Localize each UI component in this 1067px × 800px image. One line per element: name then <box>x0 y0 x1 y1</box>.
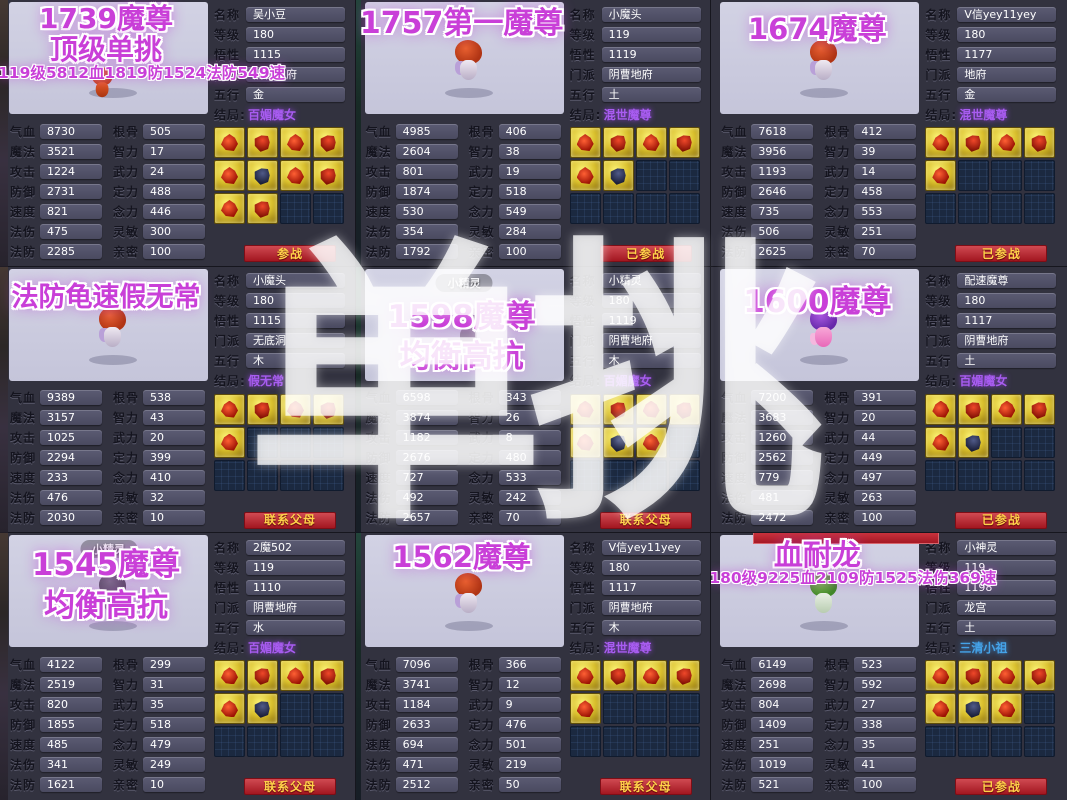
stat-label: 法伤 <box>10 223 40 240</box>
empty-skill-slot[interactable] <box>247 427 278 458</box>
info-label: 五行 <box>214 86 246 103</box>
empty-skill-slot[interactable] <box>1024 726 1055 757</box>
stat-row: 气血8730根骨505 <box>10 121 210 141</box>
info-value: V信yey11yey <box>602 540 701 555</box>
skill-icon[interactable] <box>669 660 700 691</box>
stat-label: 武力 <box>469 429 499 446</box>
stat-value: 694 <box>396 737 458 752</box>
empty-skill-slot[interactable] <box>925 460 956 491</box>
card-subtitle: 119级5812血1819防1524法防549速 <box>0 61 254 83</box>
stat-row: 气血4985根骨406 <box>366 121 566 141</box>
stat-value: 779 <box>751 470 813 485</box>
skill-icon[interactable] <box>570 427 601 458</box>
empty-skill-slot[interactable] <box>958 160 989 191</box>
empty-skill-slot[interactable] <box>958 460 989 491</box>
info-value: 小神灵 <box>957 540 1056 555</box>
empty-skill-slot[interactable] <box>636 160 667 191</box>
skill-icon[interactable] <box>570 127 601 158</box>
stat-label: 攻击 <box>721 429 751 446</box>
stat-row: 攻击804武力27 <box>721 694 921 714</box>
stat-value: 38 <box>499 144 561 159</box>
pet-sprite <box>449 573 489 623</box>
stat-value: 480 <box>499 450 561 465</box>
skill-glyph <box>962 131 986 155</box>
stat-label: 灵敏 <box>113 756 143 773</box>
skill-icon[interactable] <box>603 660 634 691</box>
info-value: 木 <box>246 353 345 368</box>
skill-icon[interactable] <box>603 394 634 425</box>
ending-value: 三清小祖 <box>957 639 1007 656</box>
info-row: 等级180 <box>214 291 352 311</box>
skill-icon[interactable] <box>1024 660 1055 691</box>
stat-label: 亲密 <box>469 509 499 526</box>
skill-icon[interactable] <box>570 660 601 691</box>
skill-icon[interactable] <box>214 427 245 458</box>
info-label: 悟性 <box>214 579 246 596</box>
stat-label: 魔法 <box>721 143 751 160</box>
empty-skill-slot[interactable] <box>925 193 956 224</box>
stat-value: 2625 <box>751 244 813 259</box>
stat-value: 100 <box>143 244 205 259</box>
stat-label: 智力 <box>469 409 499 426</box>
info-value: 1117 <box>602 580 701 595</box>
skill-icon[interactable] <box>214 660 245 691</box>
skill-icon[interactable] <box>603 160 634 191</box>
skill-icon[interactable] <box>247 127 278 158</box>
info-label: 名称 <box>925 272 957 289</box>
empty-skill-slot[interactable] <box>603 193 634 224</box>
skill-grid <box>570 394 703 491</box>
stat-value: 354 <box>396 224 458 239</box>
info-value: 1119 <box>602 47 701 62</box>
stat-value: 219 <box>499 757 561 772</box>
skill-icon[interactable] <box>280 660 311 691</box>
skill-icon[interactable] <box>570 394 601 425</box>
stat-label: 武力 <box>113 696 143 713</box>
skill-glyph <box>643 134 660 151</box>
empty-skill-slot[interactable] <box>669 726 700 757</box>
empty-skill-slot[interactable] <box>1024 693 1055 724</box>
info-row: 门派阴曹地府 <box>925 331 1063 351</box>
stat-value: 1621 <box>40 777 102 792</box>
skill-icon[interactable] <box>280 160 311 191</box>
empty-skill-slot[interactable] <box>669 460 700 491</box>
stat-label: 气血 <box>721 123 751 140</box>
stat-value: 1260 <box>751 430 813 445</box>
stat-value: 44 <box>854 430 916 445</box>
info-row: 五行木 <box>214 351 352 371</box>
empty-skill-slot[interactable] <box>636 726 667 757</box>
info-value: 119 <box>246 560 345 575</box>
stat-label: 灵敏 <box>469 223 499 240</box>
stat-value: 9 <box>499 697 561 712</box>
info-label: 五行 <box>925 619 957 636</box>
skill-icon[interactable] <box>280 394 311 425</box>
stat-label: 法伤 <box>721 756 751 773</box>
card-title: 1757第一魔尊 <box>356 7 568 41</box>
info-row: 名称V信yey11yey <box>570 537 708 557</box>
empty-skill-slot[interactable] <box>603 693 634 724</box>
empty-skill-slot[interactable] <box>570 460 601 491</box>
stat-label: 根骨 <box>469 656 499 673</box>
empty-skill-slot[interactable] <box>636 693 667 724</box>
stat-value: 1224 <box>40 164 102 179</box>
empty-skill-slot[interactable] <box>603 460 634 491</box>
stat-row: 防御1874定力518 <box>366 181 566 201</box>
action-button[interactable]: 联系父母 <box>600 778 692 795</box>
stat-row: 法防1621亲密10 <box>10 774 210 794</box>
info-value: 1115 <box>246 313 345 328</box>
empty-skill-slot[interactable] <box>1024 193 1055 224</box>
stat-row: 攻击1193武力14 <box>721 161 921 181</box>
stat-row: 法伤506灵敏251 <box>721 221 921 241</box>
info-value: 小精灵 <box>602 273 701 288</box>
skill-icon[interactable] <box>925 427 956 458</box>
skill-icon[interactable] <box>570 160 601 191</box>
stat-row: 魔法3956智力39 <box>721 141 921 161</box>
skill-icon[interactable] <box>247 193 278 224</box>
stat-label: 法防 <box>366 243 396 260</box>
info-row: 门派阴曹地府 <box>570 597 708 617</box>
skill-icon[interactable] <box>603 127 634 158</box>
empty-skill-slot[interactable] <box>991 160 1022 191</box>
skill-icon[interactable] <box>991 394 1022 425</box>
stat-value: 492 <box>396 490 458 505</box>
stat-value: 476 <box>499 717 561 732</box>
info-value: 阴曹地府 <box>957 333 1056 348</box>
skill-icon[interactable] <box>214 693 245 724</box>
empty-skill-slot[interactable] <box>669 193 700 224</box>
info-label: 名称 <box>214 539 246 556</box>
skill-icon[interactable] <box>214 394 245 425</box>
stat-value: 19 <box>499 164 561 179</box>
skill-icon[interactable] <box>925 693 956 724</box>
stat-value: 300 <box>143 224 205 239</box>
empty-skill-slot[interactable] <box>313 460 344 491</box>
empty-skill-slot[interactable] <box>1024 427 1055 458</box>
skill-icon[interactable] <box>958 127 989 158</box>
info-label: 结局: <box>214 106 246 123</box>
stat-label: 防御 <box>10 716 40 733</box>
skill-icon[interactable] <box>603 427 634 458</box>
skill-icon[interactable] <box>958 693 989 724</box>
empty-skill-slot[interactable] <box>636 460 667 491</box>
skill-icon[interactable] <box>214 160 245 191</box>
stat-label: 法防 <box>10 776 40 793</box>
skill-icon[interactable] <box>636 394 667 425</box>
empty-skill-slot[interactable] <box>247 460 278 491</box>
info-value: 配速魔尊 <box>957 273 1056 288</box>
stat-value: 592 <box>854 677 916 692</box>
stat-label: 定力 <box>824 183 854 200</box>
empty-skill-slot[interactable] <box>313 726 344 757</box>
stat-label: 定力 <box>469 449 499 466</box>
empty-skill-slot[interactable] <box>958 726 989 757</box>
info-label: 门派 <box>925 599 957 616</box>
info-value: 阴曹地府 <box>602 600 701 615</box>
stat-value: 24 <box>143 164 205 179</box>
stat-label: 法伤 <box>366 223 396 240</box>
empty-skill-slot[interactable] <box>669 693 700 724</box>
stat-row: 气血7200根骨391 <box>721 388 921 408</box>
stat-label: 定力 <box>469 716 499 733</box>
empty-skill-slot[interactable] <box>247 726 278 757</box>
skill-icon[interactable] <box>214 127 245 158</box>
stat-value: 14 <box>854 164 916 179</box>
empty-skill-slot[interactable] <box>991 427 1022 458</box>
stat-label: 念力 <box>113 736 143 753</box>
pet-stats-panel: 气血6149根骨523魔法2698智力592攻击804武力27防御1409定力3… <box>721 654 921 794</box>
skill-icon[interactable] <box>925 394 956 425</box>
skill-glyph <box>577 667 594 684</box>
action-button[interactable]: 已参战 <box>955 778 1047 795</box>
empty-skill-slot[interactable] <box>280 460 311 491</box>
stat-label: 速度 <box>366 736 396 753</box>
info-row: 门派无底洞 <box>214 331 352 351</box>
stat-label: 定力 <box>113 183 143 200</box>
stat-label: 气血 <box>721 389 751 406</box>
stat-row: 气血6598根骨343 <box>366 388 566 408</box>
skill-icon[interactable] <box>636 127 667 158</box>
skill-glyph <box>251 664 275 688</box>
skill-icon[interactable] <box>313 394 344 425</box>
skill-icon[interactable] <box>570 693 601 724</box>
card-title-line: 均衡高抗 <box>0 586 212 626</box>
info-label: 悟性 <box>925 46 957 63</box>
info-label: 等级 <box>214 26 246 43</box>
info-label: 五行 <box>925 86 957 103</box>
stat-row: 法防521亲密100 <box>721 774 921 794</box>
empty-skill-slot[interactable] <box>313 427 344 458</box>
info-label: 悟性 <box>214 46 246 63</box>
empty-skill-slot[interactable] <box>925 726 956 757</box>
skill-glyph <box>221 667 238 684</box>
stat-label: 智力 <box>824 676 854 693</box>
stat-label: 攻击 <box>10 429 40 446</box>
stat-value: 39 <box>854 144 916 159</box>
empty-skill-slot[interactable] <box>1024 160 1055 191</box>
empty-skill-slot[interactable] <box>280 427 311 458</box>
info-row: 名称小神灵 <box>925 537 1063 557</box>
skill-icon[interactable] <box>313 660 344 691</box>
skill-glyph <box>932 667 949 684</box>
skill-glyph <box>577 134 594 151</box>
stat-value: 3741 <box>396 677 458 692</box>
skill-icon[interactable] <box>247 160 278 191</box>
stat-value: 446 <box>143 204 205 219</box>
stat-label: 念力 <box>824 736 854 753</box>
stat-label: 智力 <box>469 143 499 160</box>
skill-grid <box>925 660 1058 757</box>
action-button[interactable]: 已参战 <box>600 245 692 262</box>
info-label: 五行 <box>214 352 246 369</box>
skill-icon[interactable] <box>247 693 278 724</box>
info-label: 等级 <box>214 292 246 309</box>
stat-row: 速度233念力410 <box>10 468 210 488</box>
stat-value: 341 <box>40 757 102 772</box>
info-label: 等级 <box>570 559 602 576</box>
info-value: V信yey11yey <box>957 7 1056 22</box>
empty-skill-slot[interactable] <box>991 193 1022 224</box>
stat-row: 气血7618根骨412 <box>721 121 921 141</box>
stat-label: 根骨 <box>469 389 499 406</box>
skill-icon[interactable] <box>280 127 311 158</box>
empty-skill-slot[interactable] <box>313 193 344 224</box>
skill-icon[interactable] <box>247 660 278 691</box>
ending-value: 百媚魔女 <box>957 372 1007 389</box>
skill-glyph <box>998 134 1015 151</box>
stat-label: 速度 <box>366 203 396 220</box>
empty-skill-slot[interactable] <box>991 726 1022 757</box>
skill-icon[interactable] <box>636 660 667 691</box>
stat-label: 法伤 <box>366 489 396 506</box>
skill-icon[interactable] <box>247 394 278 425</box>
stat-value: 20 <box>854 410 916 425</box>
skill-icon[interactable] <box>958 394 989 425</box>
empty-skill-slot[interactable] <box>313 693 344 724</box>
info-value: 小魔头 <box>246 273 345 288</box>
stat-value: 2030 <box>40 510 102 525</box>
stat-label: 防御 <box>366 449 396 466</box>
info-label: 门派 <box>925 332 957 349</box>
info-row: 悟性1119 <box>570 311 708 331</box>
action-button[interactable]: 已参战 <box>955 245 1047 262</box>
info-row: 结局:假无常 <box>214 371 352 391</box>
info-row: 等级119 <box>570 24 708 44</box>
stat-label: 灵敏 <box>469 756 499 773</box>
info-label: 结局: <box>570 372 602 389</box>
info-row: 结局:混世魔尊 <box>925 104 1063 124</box>
skill-glyph <box>287 167 304 184</box>
skill-icon[interactable] <box>925 160 956 191</box>
skill-glyph <box>643 667 660 684</box>
action-button[interactable]: 已参战 <box>955 512 1047 529</box>
stat-row: 攻击801武力19 <box>366 161 566 181</box>
info-value: 无底洞 <box>246 333 345 348</box>
stat-value: 518 <box>499 184 561 199</box>
stat-row: 速度821念力446 <box>10 201 210 221</box>
empty-skill-slot[interactable] <box>669 160 700 191</box>
stat-label: 灵敏 <box>824 223 854 240</box>
stat-value: 284 <box>499 224 561 239</box>
stat-value: 2657 <box>396 510 458 525</box>
action-button[interactable]: 联系父母 <box>244 778 336 795</box>
info-value: 180 <box>957 27 1056 42</box>
skill-icon[interactable] <box>925 127 956 158</box>
stat-value: 2519 <box>40 677 102 692</box>
action-button[interactable]: 参战 <box>244 245 336 262</box>
empty-skill-slot[interactable] <box>280 693 311 724</box>
pet-info-panel: 名称小魔头等级119悟性1119门派阴曹地府五行土结局:混世魔尊 <box>570 4 708 124</box>
stat-value: 801 <box>396 164 458 179</box>
skill-icon[interactable] <box>1024 394 1055 425</box>
action-button[interactable]: 联系父母 <box>244 512 336 529</box>
skill-icon[interactable] <box>669 127 700 158</box>
info-row: 结局:三清小祖 <box>925 637 1063 657</box>
empty-skill-slot[interactable] <box>214 460 245 491</box>
empty-skill-slot[interactable] <box>991 460 1022 491</box>
stat-value: 17 <box>143 144 205 159</box>
empty-skill-slot[interactable] <box>636 193 667 224</box>
ending-value: 百媚魔女 <box>246 106 296 123</box>
stat-label: 速度 <box>721 203 751 220</box>
empty-skill-slot[interactable] <box>1024 460 1055 491</box>
stat-label: 速度 <box>10 469 40 486</box>
skill-icon[interactable] <box>958 427 989 458</box>
info-row: 等级180 <box>570 557 708 577</box>
skill-grid <box>214 127 347 224</box>
info-label: 结局: <box>925 372 957 389</box>
skill-icon[interactable] <box>214 193 245 224</box>
stat-value: 727 <box>396 470 458 485</box>
empty-skill-slot[interactable] <box>280 726 311 757</box>
skill-icon[interactable] <box>669 394 700 425</box>
stat-row: 防御2294定力399 <box>10 448 210 468</box>
stat-value: 35 <box>143 697 205 712</box>
skill-icon[interactable] <box>991 693 1022 724</box>
skill-icon[interactable] <box>1024 127 1055 158</box>
empty-skill-slot[interactable] <box>570 193 601 224</box>
skill-icon[interactable] <box>991 660 1022 691</box>
stat-value: 820 <box>40 697 102 712</box>
stat-row: 法防2030亲密10 <box>10 508 210 528</box>
stat-value: 263 <box>854 490 916 505</box>
pet-info-panel: 名称小神灵等级119悟性1198门派龙宫五行土结局:三清小祖 <box>925 537 1063 657</box>
skill-icon[interactable] <box>636 427 667 458</box>
stat-label: 法防 <box>721 243 751 260</box>
stat-row: 防御2562定力449 <box>721 448 921 468</box>
stat-value: 3683 <box>751 410 813 425</box>
skill-icon[interactable] <box>925 660 956 691</box>
empty-skill-slot[interactable] <box>214 726 245 757</box>
skill-glyph <box>932 401 949 418</box>
stat-value: 2676 <box>396 450 458 465</box>
skill-icon[interactable] <box>313 127 344 158</box>
empty-skill-slot[interactable] <box>669 427 700 458</box>
stat-label: 定力 <box>824 449 854 466</box>
skill-icon[interactable] <box>991 127 1022 158</box>
info-label: 五行 <box>925 352 957 369</box>
skill-icon[interactable] <box>958 660 989 691</box>
skill-icon[interactable] <box>313 160 344 191</box>
info-label: 等级 <box>570 292 602 309</box>
empty-skill-slot[interactable] <box>958 193 989 224</box>
stat-value: 100 <box>499 244 561 259</box>
empty-skill-slot[interactable] <box>280 193 311 224</box>
stat-value: 7200 <box>751 390 813 405</box>
stat-row: 攻击1025武力20 <box>10 428 210 448</box>
stat-label: 武力 <box>469 163 499 180</box>
info-value: 龙宫 <box>957 600 1056 615</box>
info-label: 名称 <box>214 272 246 289</box>
skill-glyph <box>1028 397 1052 421</box>
stat-value: 43 <box>143 410 205 425</box>
stat-value: 10 <box>143 510 205 525</box>
stat-row: 速度694念力501 <box>366 734 566 754</box>
pet-stats-panel: 气血8730根骨505魔法3521智力17攻击1224武力24防御2731定力4… <box>10 121 210 261</box>
stat-value: 530 <box>396 204 458 219</box>
info-label: 等级 <box>570 26 602 43</box>
info-label: 结局: <box>925 639 957 656</box>
empty-skill-slot[interactable] <box>603 726 634 757</box>
card-title: 1739魔尊顶级单挑 <box>0 3 212 66</box>
action-button[interactable]: 联系父母 <box>600 512 692 529</box>
info-row: 悟性1177 <box>925 44 1063 64</box>
info-label: 结局: <box>214 372 246 389</box>
empty-skill-slot[interactable] <box>570 726 601 757</box>
info-value: 水 <box>246 620 345 635</box>
info-value: 小魔头 <box>602 7 701 22</box>
